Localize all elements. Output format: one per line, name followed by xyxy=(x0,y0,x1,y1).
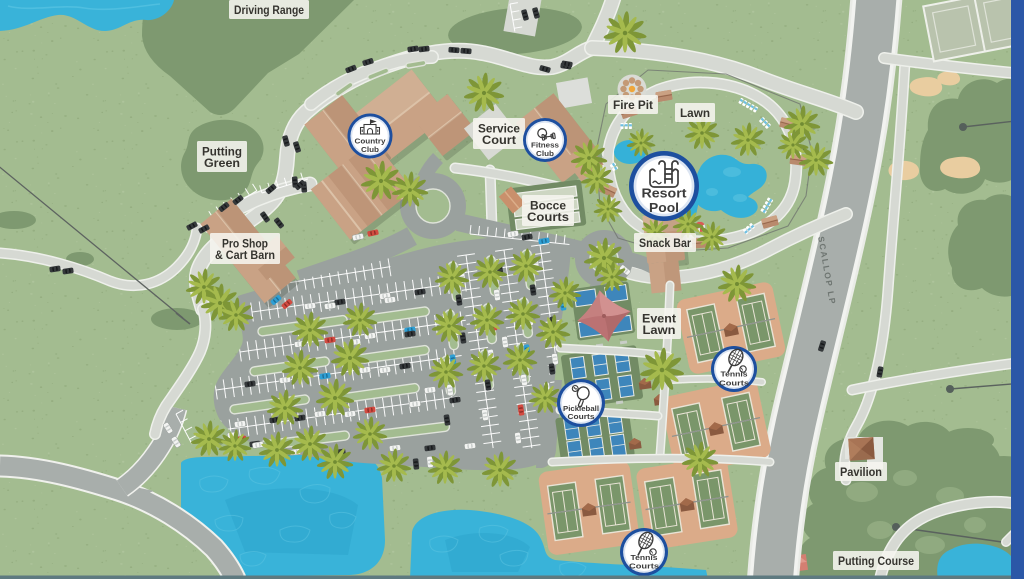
svg-text:Courts: Courts xyxy=(527,210,569,224)
svg-text:Court: Court xyxy=(482,133,516,147)
svg-text:Driving Range: Driving Range xyxy=(234,3,304,17)
svg-text:Club: Club xyxy=(361,145,379,154)
svg-text:Green: Green xyxy=(204,156,240,170)
svg-text:Club: Club xyxy=(536,149,554,158)
svg-text:Snack Bar: Snack Bar xyxy=(639,236,691,250)
svg-text:Courts: Courts xyxy=(568,414,595,421)
svg-text:Lawn: Lawn xyxy=(680,106,710,120)
svg-text:Fire Pit: Fire Pit xyxy=(613,98,653,112)
svg-text:Pool: Pool xyxy=(649,200,679,215)
svg-text:Tennis: Tennis xyxy=(631,553,658,562)
svg-text:Pickleball: Pickleball xyxy=(563,406,599,413)
svg-text:Country: Country xyxy=(355,136,387,145)
svg-text:Putting Course: Putting Course xyxy=(838,554,914,568)
svg-text:Courts: Courts xyxy=(629,562,659,571)
svg-text:Lawn: Lawn xyxy=(643,323,676,337)
svg-text:Courts: Courts xyxy=(719,378,749,387)
svg-text:Pavilion: Pavilion xyxy=(840,465,882,479)
svg-text:Fitness: Fitness xyxy=(531,140,559,149)
svg-text:Resort: Resort xyxy=(642,186,688,201)
svg-text:& Cart Barn: & Cart Barn xyxy=(215,248,275,262)
svg-text:Tennis: Tennis xyxy=(721,370,748,379)
